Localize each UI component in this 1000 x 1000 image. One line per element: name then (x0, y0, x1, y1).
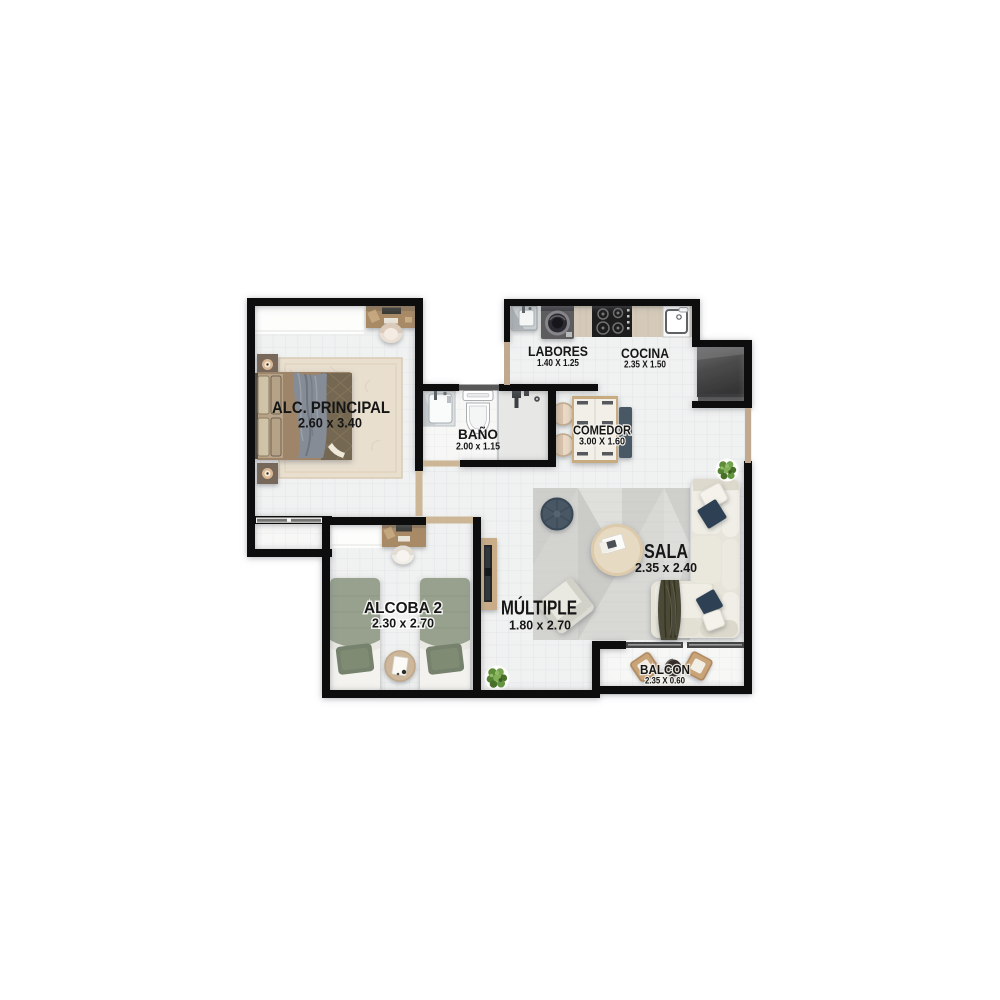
svg-text:2.35 X 0.60: 2.35 X 0.60 (645, 676, 685, 687)
svg-text:MÚLTIPLE: MÚLTIPLE (501, 596, 577, 620)
svg-text:ALC. PRINCIPAL: ALC. PRINCIPAL (272, 398, 390, 417)
svg-text:2.35 x 2.40: 2.35 x 2.40 (635, 560, 697, 575)
svg-text:ALCOBA 2: ALCOBA 2 (364, 600, 442, 617)
svg-text:1.40 X 1.25: 1.40 X 1.25 (537, 358, 579, 369)
svg-text:3.00 X 1.60: 3.00 X 1.60 (579, 436, 625, 448)
svg-text:2.30 x 2.70: 2.30 x 2.70 (372, 617, 434, 631)
svg-text:1.80 x 2.70: 1.80 x 2.70 (509, 618, 571, 633)
svg-text:2.35 X 1.50: 2.35 X 1.50 (624, 360, 666, 371)
svg-text:BAÑO: BAÑO (458, 425, 498, 442)
svg-text:2.00 x 1.15: 2.00 x 1.15 (456, 441, 500, 453)
svg-text:LABORES: LABORES (528, 343, 588, 359)
svg-text:2.60 x 3.40: 2.60 x 3.40 (298, 416, 362, 431)
